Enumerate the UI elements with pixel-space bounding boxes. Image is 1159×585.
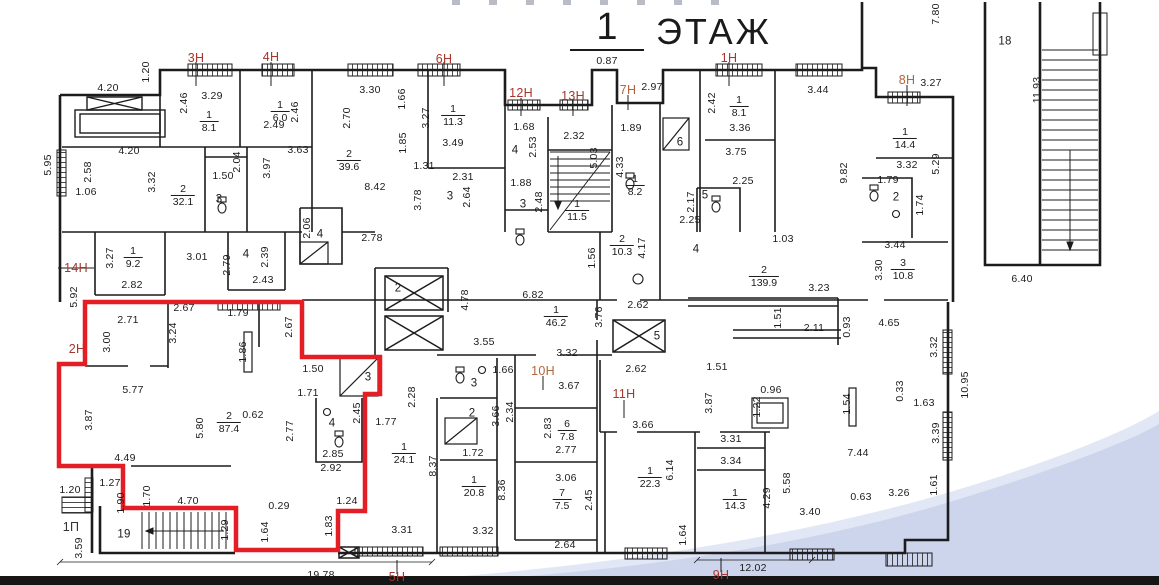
room-area-value: 7.5 xyxy=(553,499,572,512)
dimension-label: 4.20 xyxy=(97,83,118,94)
room-area-label: 310.8 xyxy=(891,258,915,282)
dimension-label: 3.44 xyxy=(807,85,828,96)
dimension-label: 3.34 xyxy=(720,456,741,467)
dimension-label: 1.63 xyxy=(913,398,934,409)
dimension-label: 1.66 xyxy=(492,365,513,376)
dimension-label-vertical: 2.79 xyxy=(222,254,233,275)
dimension-label-vertical: 3.32 xyxy=(929,336,940,357)
dimension-label-vertical: 1.64 xyxy=(678,524,689,545)
room-index: 1 xyxy=(441,104,465,115)
dimension-label: 2.71 xyxy=(117,315,138,326)
room-area-value: 46.2 xyxy=(544,316,568,329)
room-area-value: 14.4 xyxy=(893,138,917,151)
dimension-label: 1.27 xyxy=(99,478,120,489)
dimension-label: 2.67 xyxy=(173,303,194,314)
dimension-label-vertical: 1.56 xyxy=(587,247,598,268)
room-area-value: 39.6 xyxy=(337,160,361,173)
dimension-label-vertical: 3.30 xyxy=(874,259,885,280)
dimension-label-vertical: 1.51 xyxy=(773,307,784,328)
dimension-label-vertical: 2.45 xyxy=(584,489,595,510)
room-number-label: 3 xyxy=(447,191,454,203)
room-area-label: 18.1 xyxy=(200,110,219,134)
dimension-label: 2.62 xyxy=(625,364,646,375)
dimension-label: 4.20 xyxy=(118,146,139,157)
room-index: 1 xyxy=(723,488,747,499)
dimension-label: 1.06 xyxy=(75,187,96,198)
room-number-label: 3 xyxy=(365,372,372,384)
dimension-label: 1.77 xyxy=(375,417,396,428)
room-number-label: 3 xyxy=(471,378,478,390)
room-area-label: 287.4 xyxy=(217,411,241,435)
room-index: 1 xyxy=(893,127,917,138)
room-index: 2 xyxy=(217,411,241,422)
room-area-label: 19.2 xyxy=(124,246,143,270)
dimension-label-vertical: 1.74 xyxy=(915,194,926,215)
dimension-label-vertical: 4.29 xyxy=(762,487,773,508)
dimension-label: 3.49 xyxy=(442,138,463,149)
dimension-label-vertical: 3.87 xyxy=(84,409,95,430)
dimension-label: 1.51 xyxy=(706,362,727,373)
dimension-label: 2.92 xyxy=(320,463,341,474)
room-area-value: 8.1 xyxy=(730,106,749,119)
dimension-label: 2.62 xyxy=(627,300,648,311)
dimension-label: 3.63 xyxy=(287,145,308,156)
dimension-label-vertical: 5.58 xyxy=(782,472,793,493)
dimension-label: 8.42 xyxy=(364,182,385,193)
room-area-label: 210.3 xyxy=(610,234,634,258)
room-number-label: 5 xyxy=(654,331,661,343)
dimension-label: 1.89 xyxy=(620,123,641,134)
room-index: 2 xyxy=(171,184,195,195)
dimension-label-vertical: 1.85 xyxy=(398,132,409,153)
dimension-label: 2.25 xyxy=(732,176,753,187)
room-area-label: 111.3 xyxy=(441,104,465,128)
dimension-label: 3.01 xyxy=(186,252,207,263)
room-area-label: 122.3 xyxy=(638,466,662,490)
dimension-label-vertical: 5.92 xyxy=(69,286,80,307)
dimension-label: 3.31 xyxy=(720,434,741,445)
room-area-value: 139.9 xyxy=(749,276,779,289)
dimension-label: 0.96 xyxy=(760,385,781,396)
dimension-label-vertical: 3.97 xyxy=(262,157,273,178)
dimension-label-vertical: 1.86 xyxy=(238,341,249,362)
dimension-label-vertical: 9.82 xyxy=(839,162,850,183)
dimension-label: 1.50 xyxy=(302,364,323,375)
room-area-label: 18.2 xyxy=(626,174,645,198)
dimension-label-vertical: 11.93 xyxy=(1032,77,1043,104)
room-area-label: 16.0 xyxy=(271,100,290,124)
room-index: 3 xyxy=(891,258,915,269)
room-number-label: 2 xyxy=(395,283,402,295)
dimension-label: 0.87 xyxy=(596,56,617,67)
room-index: 1 xyxy=(544,305,568,316)
room-area-value: 10.8 xyxy=(891,269,915,282)
dimension-label-vertical: 2.28 xyxy=(407,386,418,407)
dimension-label: 3.55 xyxy=(473,337,494,348)
dimension-label: 2.77 xyxy=(555,445,576,456)
unit-label: 1П xyxy=(63,521,80,534)
room-index: 2 xyxy=(749,265,779,276)
room-number-label: 2 xyxy=(469,408,476,420)
dimension-label: 3.36 xyxy=(729,123,750,134)
dimension-label: 3.32 xyxy=(556,348,577,359)
room-number-label: 5 xyxy=(702,190,709,202)
room-area-value: 9.2 xyxy=(124,257,143,270)
dimension-label: 3.66 xyxy=(632,420,653,431)
dimension-label: 3.06 xyxy=(555,473,576,484)
dimension-label: 0.29 xyxy=(268,501,289,512)
room-number-label: 3 xyxy=(216,194,223,206)
dimension-label-vertical: 1.22 xyxy=(752,396,763,417)
dimension-label-vertical: 2.58 xyxy=(83,161,94,182)
dimension-label-vertical: 10.95 xyxy=(960,371,971,398)
room-index: 1 xyxy=(392,442,416,453)
dimension-label-vertical: 1.64 xyxy=(260,521,271,542)
room-area-value: 8.1 xyxy=(200,121,219,134)
dimension-label: 1.20 xyxy=(59,485,80,496)
room-number-label: 4 xyxy=(512,145,519,157)
dimension-label: 2.82 xyxy=(121,280,142,291)
unit-label: 10Н xyxy=(531,365,555,378)
dimension-label: 3.30 xyxy=(359,85,380,96)
dimension-label-vertical: 2.46 xyxy=(179,92,190,113)
dimension-label: 1.88 xyxy=(510,178,531,189)
dimension-label-vertical: 3.24 xyxy=(168,322,179,343)
room-index: 1 xyxy=(200,110,219,121)
dimension-label-vertical: 2.34 xyxy=(505,401,516,422)
dimension-label-vertical: 3.27 xyxy=(421,107,432,128)
room-number-label: 18 xyxy=(998,36,1011,48)
dimension-label: 0.62 xyxy=(242,410,263,421)
dimension-label: 1.68 xyxy=(513,122,534,133)
dimension-label-vertical: 0.33 xyxy=(895,380,906,401)
dimension-label-vertical: 0.93 xyxy=(842,316,853,337)
room-area-label: 239.6 xyxy=(337,149,361,173)
dimension-label-vertical: 3.76 xyxy=(594,306,605,327)
dimension-label: 3.67 xyxy=(558,381,579,392)
dimension-label: 2.32 xyxy=(563,131,584,142)
room-area-value: 10.3 xyxy=(610,245,634,258)
dimension-label: 4.65 xyxy=(878,318,899,329)
dimension-label: 2.25 xyxy=(679,215,700,226)
dimension-label-vertical: 2.53 xyxy=(528,136,539,157)
dimension-label: 7.44 xyxy=(847,448,868,459)
dimension-label-vertical: 2.70 xyxy=(342,107,353,128)
dimension-label-vertical: 2.06 xyxy=(302,217,313,238)
room-index: 6 xyxy=(558,419,577,430)
unit-label: 8Н xyxy=(899,74,916,87)
dimension-label: 12.02 xyxy=(739,563,766,574)
dimension-label: 1.31 xyxy=(413,161,434,172)
dimension-label-vertical: 2.48 xyxy=(534,191,545,212)
unit-label: 1Н xyxy=(721,52,738,65)
room-index: 1 xyxy=(626,174,645,185)
room-area-value: 11.3 xyxy=(441,115,465,128)
dimension-label-vertical: 2.04 xyxy=(232,151,243,172)
dimension-label-vertical: 1.66 xyxy=(397,88,408,109)
unit-label: 3Н xyxy=(188,52,205,65)
room-area-value: 87.4 xyxy=(217,422,241,435)
dimension-label-vertical: 8.36 xyxy=(497,479,508,500)
room-number-label: 4 xyxy=(329,418,336,430)
room-area-value: 32.1 xyxy=(171,195,195,208)
floor-word: ЭТАЖ xyxy=(656,13,772,51)
room-area-value: 6.0 xyxy=(271,111,290,124)
unit-label: 9Н xyxy=(713,569,730,582)
dimension-label: 1.03 xyxy=(772,234,793,245)
room-area-value: 22.3 xyxy=(638,477,662,490)
dimension-label-vertical: 3.87 xyxy=(704,392,715,413)
dimension-label: 2.64 xyxy=(554,540,575,551)
dimension-label-vertical: 1.83 xyxy=(324,515,335,536)
dimension-label: 3.40 xyxy=(799,507,820,518)
dimension-label: 5.77 xyxy=(122,385,143,396)
room-area-label: 124.1 xyxy=(392,442,416,466)
dimension-label-vertical: 3.32 xyxy=(147,171,158,192)
dimension-label-vertical: 7.80 xyxy=(931,3,942,24)
dimension-label-vertical: 2.46 xyxy=(290,101,301,122)
unit-label: 6Н xyxy=(436,53,453,66)
room-index: 1 xyxy=(730,95,749,106)
room-area-label: 120.8 xyxy=(462,475,486,499)
dimension-label: 1.71 xyxy=(297,388,318,399)
dimension-label: 2.43 xyxy=(252,275,273,286)
dimension-label: 3.23 xyxy=(808,283,829,294)
dimension-label-vertical: 5.03 xyxy=(589,147,600,168)
room-area-label: 114.4 xyxy=(893,127,917,151)
dimension-label-vertical: 2.39 xyxy=(260,246,271,267)
room-index: 1 xyxy=(124,246,143,257)
dimension-label: 3.32 xyxy=(896,160,917,171)
dimension-label: 3.26 xyxy=(888,488,909,499)
room-index: 2 xyxy=(337,149,361,160)
room-number-label: 19 xyxy=(117,529,130,541)
room-index: 7 xyxy=(553,488,572,499)
dimension-label-vertical: 4.78 xyxy=(460,289,471,310)
dimension-label: 2.97 xyxy=(641,82,662,93)
unit-label: 5Н xyxy=(389,571,406,584)
dimension-label: 6.40 xyxy=(1011,274,1032,285)
dimension-label: 3.29 xyxy=(201,91,222,102)
labels-layer: 4.203.292.493.303.634.201.063.491.312.31… xyxy=(0,0,1159,585)
dimension-label-vertical: 2.42 xyxy=(707,92,718,113)
dimension-label-vertical: 2.67 xyxy=(284,316,295,337)
dimension-label-vertical: 3.59 xyxy=(74,537,85,558)
room-number-label: 6 xyxy=(677,137,684,149)
dimension-label: 2.11 xyxy=(804,323,824,334)
dimension-label: 4.70 xyxy=(177,496,198,507)
dimension-label: 3.32 xyxy=(472,526,493,537)
room-index: 1 xyxy=(462,475,486,486)
unit-label: 7Н xyxy=(620,84,637,97)
floor-plan-canvas: 4.203.292.493.303.634.201.063.491.312.31… xyxy=(0,0,1159,585)
dimension-label-vertical: 3.00 xyxy=(102,331,113,352)
room-area-label: 114.3 xyxy=(723,488,747,512)
dimension-label: 19.78 xyxy=(307,570,334,581)
dimension-label-vertical: 2.64 xyxy=(462,186,473,207)
room-area-value: 8.2 xyxy=(626,185,645,198)
room-area-value: 20.8 xyxy=(462,486,486,499)
unit-label: 14Н xyxy=(64,262,88,275)
room-number-label: 4 xyxy=(317,229,324,241)
dimension-label: 2.85 xyxy=(322,449,343,460)
room-area-label: 232.1 xyxy=(171,184,195,208)
room-area-label: 2139.9 xyxy=(749,265,779,289)
dimension-label-vertical: 2.45 xyxy=(352,402,363,423)
room-index: 2 xyxy=(610,234,634,245)
dimension-label-vertical: 6.14 xyxy=(665,459,676,480)
room-area-value: 24.1 xyxy=(392,453,416,466)
dimension-label: 2.31 xyxy=(452,172,473,183)
dimension-label: 3.75 xyxy=(725,147,746,158)
room-number-label: 4 xyxy=(243,249,250,261)
dimension-label-vertical: 5.29 xyxy=(931,153,942,174)
dimension-label: 0.63 xyxy=(850,492,871,503)
dimension-label-vertical: 3.27 xyxy=(105,247,116,268)
room-area-label: 146.2 xyxy=(544,305,568,329)
floor-number: 1 xyxy=(570,8,644,51)
unit-label: 12Н xyxy=(509,87,533,100)
unit-label: 2Н xyxy=(69,343,86,356)
dimension-label-vertical: 4.17 xyxy=(637,237,648,258)
room-number-label: 2 xyxy=(893,192,900,204)
dimension-label: 1.24 xyxy=(336,496,357,507)
plan-title: 1 ЭТАЖ xyxy=(570,8,772,51)
dimension-label-vertical: 3.39 xyxy=(931,422,942,443)
dimension-label: 3.27 xyxy=(920,78,941,89)
dimension-label-vertical: 3.66 xyxy=(491,405,502,426)
room-area-label: 67.8 xyxy=(558,419,577,443)
dimension-label: 1.79 xyxy=(877,175,898,186)
unit-label: 13Н xyxy=(561,90,585,103)
dimension-label-vertical: 5.80 xyxy=(195,417,206,438)
room-index: 1 xyxy=(271,100,290,111)
room-area-label: 77.5 xyxy=(553,488,572,512)
room-index: 1 xyxy=(638,466,662,477)
dimension-label: 1.72 xyxy=(462,448,483,459)
dimension-label-vertical: 4.33 xyxy=(615,156,626,177)
room-area-label: 18.1 xyxy=(730,95,749,119)
unit-label: 4Н xyxy=(263,51,280,64)
dimension-label-vertical: 1.20 xyxy=(141,61,152,82)
room-area-value: 7.8 xyxy=(558,430,577,443)
room-index: 1 xyxy=(565,199,589,210)
dimension-label-vertical: 1.70 xyxy=(142,485,153,506)
dimension-label-vertical: 8.37 xyxy=(428,455,439,476)
dimension-label-vertical: 1.90 xyxy=(116,492,127,513)
room-area-value: 14.3 xyxy=(723,499,747,512)
dimension-label: 3.31 xyxy=(391,525,412,536)
unit-label: 11Н xyxy=(613,388,636,401)
dimension-label-vertical: 3.78 xyxy=(413,189,424,210)
dimension-label: 6.82 xyxy=(522,290,543,301)
dimension-label: 4.49 xyxy=(114,453,135,464)
room-area-value: 11.5 xyxy=(565,210,589,223)
room-number-label: 4 xyxy=(693,244,700,256)
dimension-label: 3.44 xyxy=(884,240,905,251)
dimension-label-vertical: 2.77 xyxy=(285,420,296,441)
dimension-label-vertical: 5.95 xyxy=(43,154,54,175)
dimension-label: 1.79 xyxy=(227,308,248,319)
dimension-label-vertical: 2.83 xyxy=(543,417,554,438)
dimension-label-vertical: 1.54 xyxy=(842,393,853,414)
dimension-label-vertical: 1.61 xyxy=(929,474,940,495)
room-area-label: 111.5 xyxy=(565,199,589,223)
dimension-label: 2.78 xyxy=(361,233,382,244)
room-number-label: 3 xyxy=(520,199,527,211)
dimension-label-vertical: 2.17 xyxy=(686,191,697,212)
dimension-label-vertical: 1.29 xyxy=(220,519,231,540)
